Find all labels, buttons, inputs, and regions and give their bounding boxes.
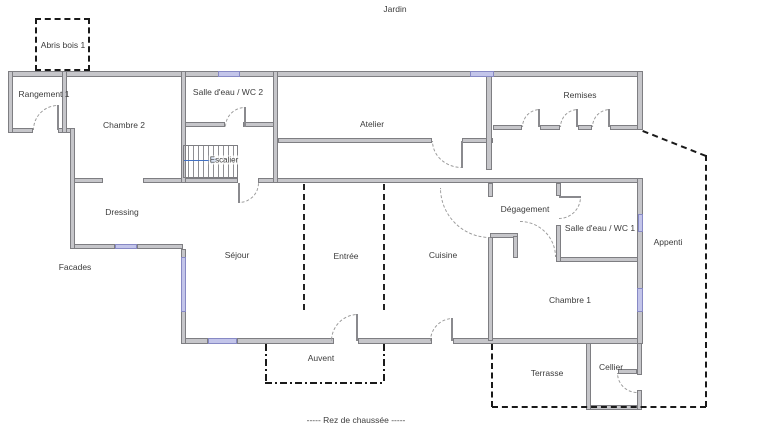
door-leaf xyxy=(608,109,610,127)
door-leaf xyxy=(576,109,578,127)
wall-segment xyxy=(637,71,643,130)
door-swing-arc xyxy=(430,318,453,341)
wall-segment xyxy=(637,178,643,344)
room-label-rangement: Rangement 1 xyxy=(18,89,69,99)
room-label-auvent: Auvent xyxy=(308,353,334,363)
appenti-boundary-diagonal xyxy=(642,130,706,157)
wall-segment xyxy=(556,225,561,262)
room-label-dressing: Dressing xyxy=(105,207,139,217)
auvent-boundary-bottom xyxy=(265,382,385,384)
terrasse-boundary-left xyxy=(491,344,493,407)
door-leaf xyxy=(244,107,246,127)
entree-partition-dashed-left xyxy=(303,184,305,310)
room-label-entree: Entrée xyxy=(333,251,358,261)
wall-segment xyxy=(453,338,643,344)
wall-segment xyxy=(273,71,278,183)
wall-segment xyxy=(62,71,67,133)
door-leaf xyxy=(57,105,59,130)
room-label-sejour: Séjour xyxy=(225,250,250,260)
window-marker xyxy=(638,214,643,232)
wall-segment xyxy=(540,125,560,130)
door-swing-arc xyxy=(559,197,581,219)
door-leaf xyxy=(461,141,463,168)
plan-title: ----- Rez de chaussée ----- xyxy=(307,415,406,425)
wall-segment xyxy=(637,343,642,375)
room-label-abris-bois: Abris bois 1 xyxy=(41,40,85,50)
room-label-chambre1: Chambre 1 xyxy=(549,295,591,305)
door-swing-arc xyxy=(432,141,462,168)
wall-segment xyxy=(578,125,592,130)
door-swing-arc xyxy=(33,105,58,130)
wall-segment xyxy=(70,244,115,249)
wall-segment xyxy=(586,343,591,410)
wall-segment xyxy=(143,178,238,183)
door-leaf xyxy=(238,183,240,203)
room-label-remises: Remises xyxy=(563,90,596,100)
wall-segment xyxy=(181,122,225,127)
window-marker xyxy=(181,257,186,312)
appenti-terrasse-boundary-bottom xyxy=(492,406,706,408)
door-leaf xyxy=(451,318,453,341)
window-marker xyxy=(470,71,494,77)
room-label-degagement: Dégagement xyxy=(501,204,550,214)
wall-segment xyxy=(70,128,75,249)
room-label-chambre2: Chambre 2 xyxy=(103,120,145,130)
room-label-jardin: Jardin xyxy=(383,4,406,14)
floor-plan: Jardin Abris bois 1 Rangement 1 Chambre … xyxy=(0,0,763,443)
door-swing-arc xyxy=(617,373,637,393)
auvent-boundary-right xyxy=(383,344,385,384)
wall-segment xyxy=(358,338,432,344)
wall-segment xyxy=(8,71,13,133)
room-label-atelier: Atelier xyxy=(360,119,384,129)
room-label-cellier: Cellier xyxy=(599,362,623,372)
wall-segment xyxy=(278,138,432,143)
wall-segment xyxy=(258,178,643,183)
door-swing-arc xyxy=(239,183,259,203)
door-leaf xyxy=(559,196,581,198)
window-marker xyxy=(637,288,643,312)
window-marker xyxy=(218,71,240,77)
window-marker xyxy=(208,338,237,344)
door-leaf xyxy=(538,109,540,127)
window-marker xyxy=(115,244,137,249)
entree-partition-dashed-right xyxy=(383,184,385,310)
appenti-boundary-right xyxy=(705,155,707,407)
wall-segment xyxy=(486,71,492,170)
wall-segment xyxy=(8,71,643,77)
label-facades: Facades xyxy=(59,262,92,272)
wall-segment xyxy=(556,257,643,262)
door-leaf xyxy=(356,314,358,341)
wall-segment xyxy=(237,338,334,344)
room-label-salle-eau-wc2: Salle d'eau / WC 2 xyxy=(193,87,263,97)
door-swing-arc xyxy=(440,188,490,238)
door-swing-arc xyxy=(331,314,358,341)
room-label-cuisine: Cuisine xyxy=(429,250,457,260)
room-label-terrasse: Terrasse xyxy=(531,368,564,378)
door-swing-arc xyxy=(520,221,556,257)
room-label-salle-eau-wc1: Salle d'eau / WC 1 xyxy=(565,223,635,233)
wall-segment xyxy=(556,183,561,196)
wall-segment xyxy=(488,237,493,341)
wall-segment xyxy=(513,236,518,258)
auvent-boundary-left xyxy=(265,344,267,384)
wall-segment xyxy=(493,125,522,130)
room-label-escalier: Escalier xyxy=(209,156,239,165)
wall-segment xyxy=(137,244,183,249)
door-swing-arc xyxy=(225,107,245,127)
room-label-appenti: Appenti xyxy=(654,237,683,247)
